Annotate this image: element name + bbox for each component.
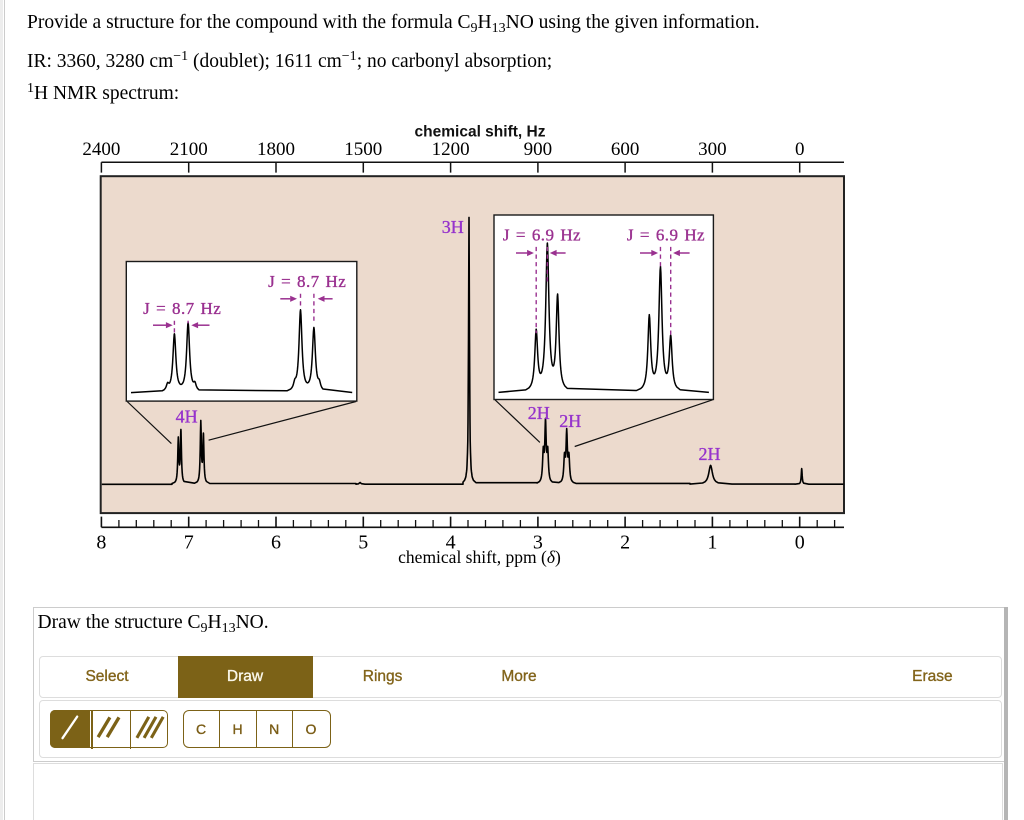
svg-text:2: 2 <box>620 531 630 553</box>
svg-text:900: 900 <box>524 139 553 160</box>
svg-text:1200: 1200 <box>432 139 470 160</box>
svg-text:6: 6 <box>271 531 281 553</box>
svg-text:2H: 2H <box>699 444 721 464</box>
svg-text:2H: 2H <box>559 411 581 431</box>
svg-text:J = 6.9 Hz: J = 6.9 Hz <box>503 225 581 244</box>
svg-text:300: 300 <box>698 139 727 160</box>
svg-text:2100: 2100 <box>170 139 208 160</box>
svg-text:1500: 1500 <box>344 139 382 160</box>
svg-text:5: 5 <box>358 531 368 553</box>
svg-text:J = 8.7 Hz: J = 8.7 Hz <box>268 272 346 291</box>
svg-text:8: 8 <box>96 531 106 553</box>
svg-text:J = 6.9 Hz: J = 6.9 Hz <box>627 225 705 244</box>
svg-text:7: 7 <box>184 531 194 553</box>
svg-text:chemical shift, ppm (δ): chemical shift, ppm (δ) <box>398 547 561 567</box>
svg-text:2H: 2H <box>528 403 550 423</box>
svg-text:4H: 4H <box>176 407 198 427</box>
svg-text:0: 0 <box>795 531 805 553</box>
svg-text:3H: 3H <box>442 217 464 237</box>
svg-text:600: 600 <box>611 139 640 160</box>
svg-text:J = 8.7 Hz: J = 8.7 Hz <box>143 299 221 318</box>
svg-text:1: 1 <box>707 531 717 553</box>
svg-text:0: 0 <box>795 139 805 160</box>
svg-text:1800: 1800 <box>257 139 295 160</box>
svg-text:2400: 2400 <box>82 139 120 160</box>
